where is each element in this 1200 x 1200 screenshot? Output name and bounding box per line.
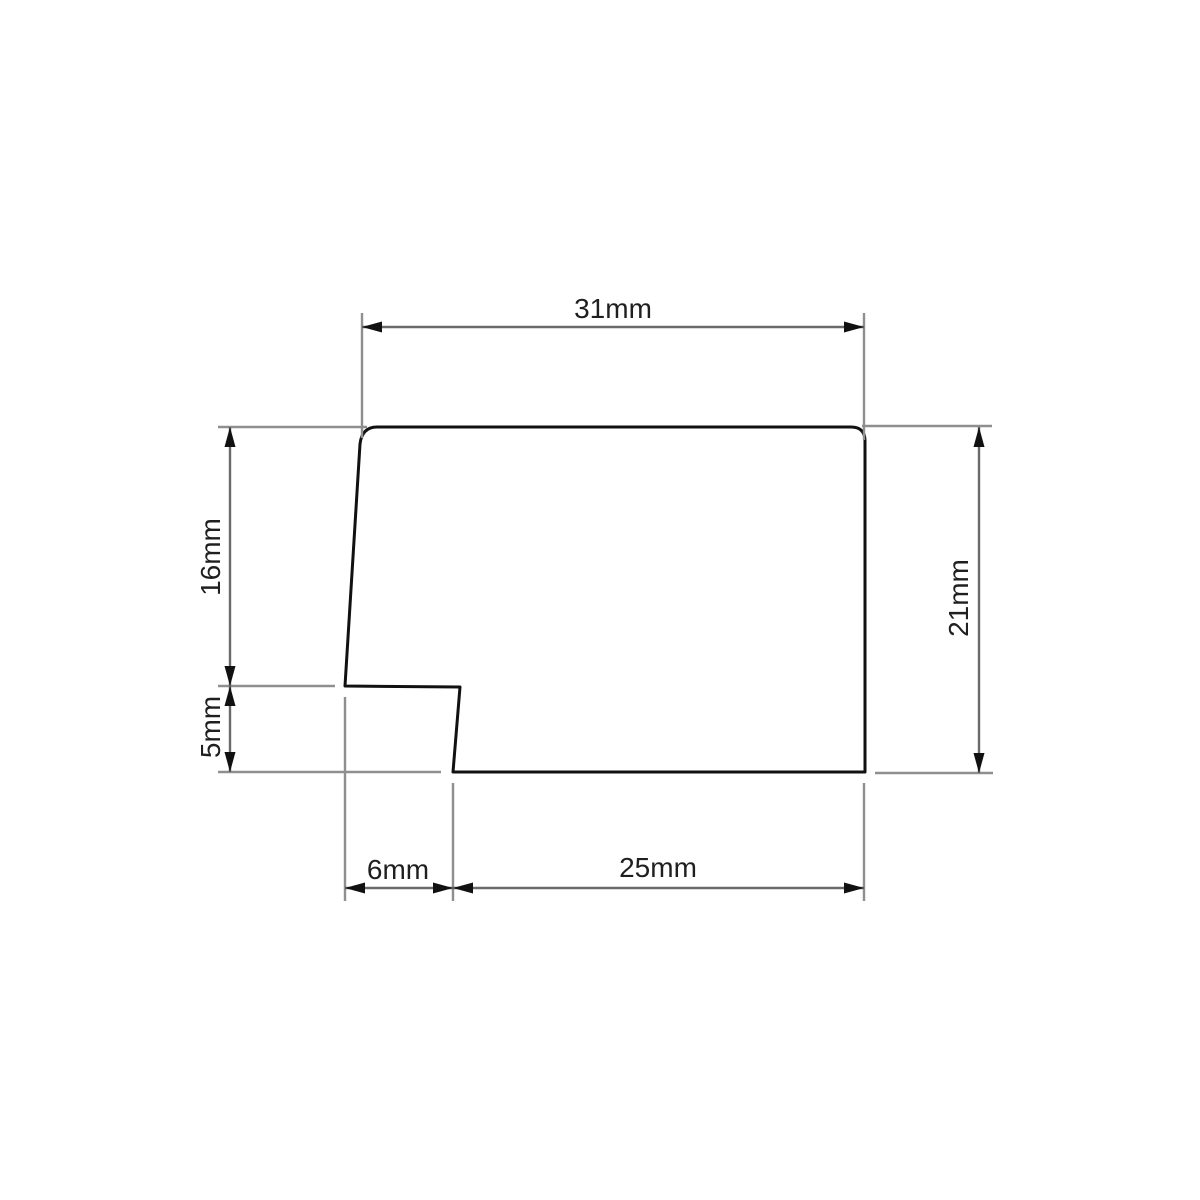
dim-bottom-right-width: 25mm — [453, 783, 864, 901]
dim-upper-left-height: 16mm — [195, 427, 367, 686]
arrowhead-left — [345, 883, 365, 894]
arrowhead-up — [974, 427, 985, 447]
arrowhead-down — [225, 752, 236, 772]
arrowhead-left — [453, 883, 473, 894]
arrowhead-right — [844, 883, 864, 894]
dim-label-bottom-left-width: 6mm — [367, 854, 429, 885]
arrowhead-right — [433, 883, 453, 894]
dim-label-upper-left-height: 16mm — [195, 518, 226, 596]
profile-shape — [345, 427, 865, 772]
arrowhead-right — [844, 322, 864, 333]
drawing-svg: 31mm 16mm 5mm 21mm — [0, 0, 1200, 1200]
arrowhead-up — [225, 686, 236, 706]
technical-drawing: 31mm 16mm 5mm 21mm — [0, 0, 1200, 1200]
dim-label-lower-left-height: 5mm — [195, 696, 226, 758]
dim-label-top-width: 31mm — [574, 293, 652, 324]
profile-outline — [345, 427, 865, 772]
dim-label-right-height: 21mm — [943, 559, 974, 637]
arrowhead-down — [974, 753, 985, 773]
arrowhead-left — [362, 322, 382, 333]
arrowhead-up — [225, 427, 236, 447]
arrowhead-down — [225, 666, 236, 686]
dim-label-bottom-right-width: 25mm — [619, 852, 697, 883]
dim-lower-left-height: 5mm — [195, 686, 441, 772]
dim-right-height: 21mm — [862, 426, 993, 773]
dim-top-width: 31mm — [362, 293, 864, 440]
dim-bottom-left-width: 6mm — [345, 697, 453, 901]
